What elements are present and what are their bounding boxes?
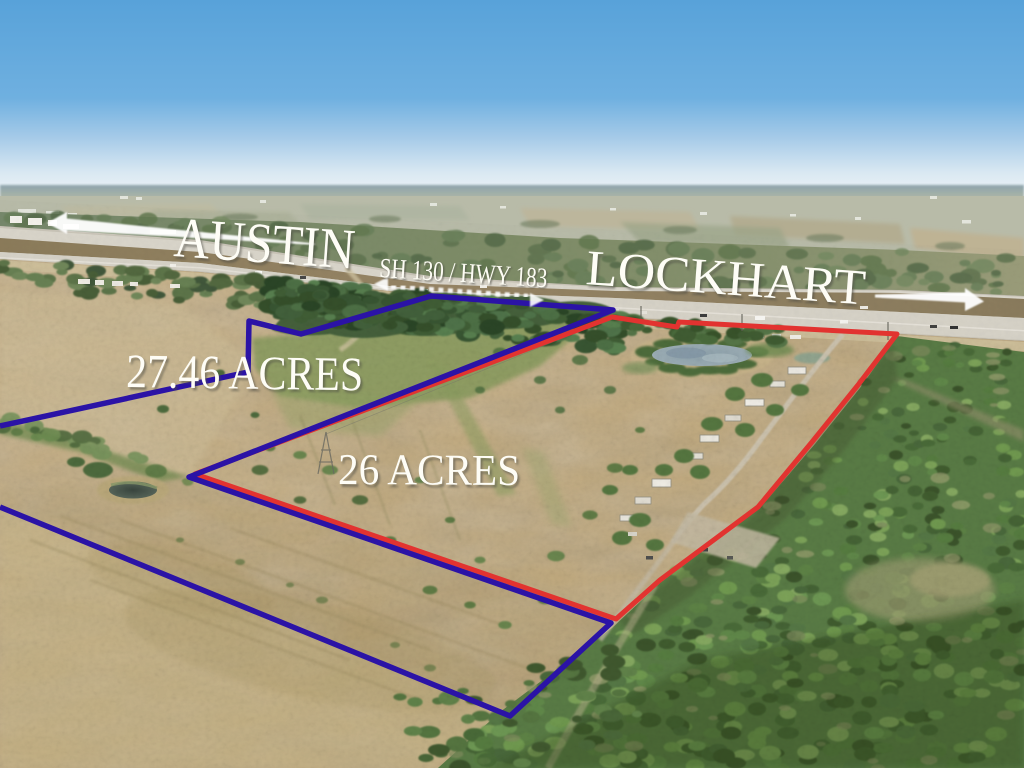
svg-text:27.46 ACRES: 27.46 ACRES [126,345,364,401]
svg-text:26 ACRES: 26 ACRES [338,445,520,495]
svg-text:AUSTIN: AUSTIN [172,206,357,281]
